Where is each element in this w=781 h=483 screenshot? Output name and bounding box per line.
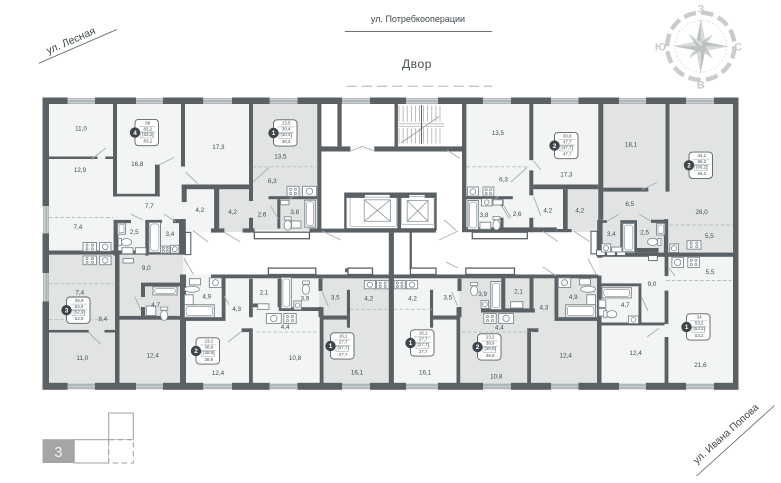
svg-text:(47,7): (47,7) [561, 145, 573, 150]
svg-text:2,5: 2,5 [640, 229, 649, 236]
svg-text:4,4: 4,4 [495, 324, 504, 331]
svg-text:3,9: 3,9 [478, 291, 487, 298]
svg-text:2: 2 [476, 344, 480, 351]
svg-text:7,4: 7,4 [74, 224, 83, 231]
svg-text:2,6: 2,6 [258, 211, 267, 218]
svg-text:16,1: 16,1 [351, 370, 364, 377]
svg-text:27,7: 27,7 [339, 340, 348, 345]
svg-text:В: В [697, 80, 705, 92]
svg-text:4,7: 4,7 [151, 302, 160, 309]
svg-text:4,4: 4,4 [281, 324, 290, 331]
svg-text:6,3: 6,3 [268, 178, 277, 185]
svg-text:52,9: 52,9 [75, 304, 84, 309]
svg-text:3: 3 [54, 444, 62, 461]
svg-text:10,8: 10,8 [490, 374, 503, 381]
svg-text:47,7: 47,7 [563, 152, 572, 157]
svg-text:2,1: 2,1 [260, 289, 269, 296]
svg-text:30,4: 30,4 [282, 127, 291, 132]
svg-text:3,8: 3,8 [480, 212, 489, 219]
svg-text:23,2: 23,2 [205, 339, 214, 344]
svg-text:(27,7): (27,7) [337, 345, 349, 350]
svg-text:2: 2 [687, 163, 691, 170]
svg-text:4,7: 4,7 [621, 302, 630, 309]
svg-text:11,0: 11,0 [76, 355, 88, 362]
svg-text:4,2: 4,2 [228, 209, 237, 216]
svg-text:34: 34 [697, 315, 702, 320]
svg-text:11,0: 11,0 [75, 126, 87, 133]
svg-text:27,7: 27,7 [339, 352, 348, 357]
svg-text:21,6: 21,6 [694, 362, 707, 369]
svg-text:3,8: 3,8 [290, 209, 299, 216]
svg-text:2,1: 2,1 [514, 288, 523, 295]
svg-text:5,5: 5,5 [705, 233, 714, 240]
svg-text:(30,4): (30,4) [280, 132, 292, 137]
svg-text:4,2: 4,2 [575, 208, 584, 215]
svg-text:16,1: 16,1 [419, 331, 428, 336]
svg-text:3,4: 3,4 [607, 231, 616, 238]
svg-text:12,4: 12,4 [560, 353, 573, 360]
svg-text:7,7: 7,7 [145, 203, 154, 210]
svg-text:3,5: 3,5 [331, 294, 340, 301]
svg-text:52,9: 52,9 [75, 316, 84, 321]
svg-text:66,2: 66,2 [698, 171, 707, 176]
svg-text:4,3: 4,3 [540, 305, 549, 312]
svg-text:13,5: 13,5 [492, 130, 505, 137]
svg-text:4,2: 4,2 [364, 296, 373, 303]
svg-text:3,5: 3,5 [443, 294, 452, 301]
svg-text:53,2: 53,2 [695, 333, 704, 338]
svg-text:13,5: 13,5 [274, 154, 287, 161]
svg-text:6,3: 6,3 [499, 176, 508, 183]
svg-text:(38,9): (38,9) [484, 346, 496, 351]
svg-text:3,4: 3,4 [166, 231, 175, 238]
svg-text:3,9: 3,9 [301, 296, 310, 303]
svg-text:66,2: 66,2 [698, 159, 707, 164]
svg-text:4,2: 4,2 [408, 296, 417, 303]
svg-text:16,1: 16,1 [339, 334, 348, 339]
svg-text:4,9: 4,9 [569, 294, 578, 301]
svg-text:4,2: 4,2 [195, 207, 204, 214]
svg-text:12,4: 12,4 [212, 370, 225, 377]
svg-text:53,2: 53,2 [695, 321, 704, 326]
svg-text:9,0: 9,0 [142, 265, 151, 272]
svg-text:30,8: 30,8 [563, 133, 572, 138]
svg-text:13,5: 13,5 [282, 121, 291, 126]
svg-text:2: 2 [553, 143, 557, 150]
svg-text:16,1: 16,1 [419, 370, 432, 377]
svg-text:З: З [697, 4, 704, 16]
svg-text:17,3: 17,3 [212, 144, 225, 151]
svg-text:(38,9): (38,9) [203, 350, 215, 355]
svg-text:4,3: 4,3 [232, 306, 241, 313]
svg-text:12,9: 12,9 [74, 167, 87, 174]
svg-text:47,7: 47,7 [563, 139, 572, 144]
svg-text:38,9: 38,9 [205, 345, 214, 350]
svg-text:2: 2 [194, 348, 198, 355]
svg-text:26,0: 26,0 [695, 209, 708, 216]
svg-text:12,4: 12,4 [147, 353, 160, 360]
svg-text:23,2: 23,2 [486, 335, 495, 340]
svg-text:38,9: 38,9 [486, 341, 495, 346]
svg-text:83,2: 83,2 [144, 139, 153, 144]
svg-text:(66,2): (66,2) [696, 165, 708, 170]
svg-text:8,4: 8,4 [98, 316, 107, 323]
svg-text:38,9: 38,9 [205, 357, 214, 362]
svg-text:9,0: 9,0 [648, 281, 657, 288]
svg-text:1: 1 [272, 130, 276, 137]
svg-text:5,5: 5,5 [706, 269, 715, 276]
svg-text:1: 1 [329, 343, 333, 350]
svg-text:35,8: 35,8 [75, 298, 84, 303]
svg-text:27,7: 27,7 [419, 337, 428, 342]
svg-text:30,4: 30,4 [282, 139, 291, 144]
svg-text:4,9: 4,9 [202, 294, 211, 301]
svg-text:44,1: 44,1 [698, 153, 707, 158]
svg-text:(27,7): (27,7) [417, 342, 429, 347]
svg-text:(53,2): (53,2) [693, 326, 705, 331]
svg-text:58: 58 [145, 120, 150, 125]
svg-text:10,8: 10,8 [289, 355, 302, 362]
svg-text:ул. Потребкооперации: ул. Потребкооперации [371, 14, 465, 24]
svg-text:7,4: 7,4 [75, 289, 84, 296]
svg-text:(83,2): (83,2) [142, 132, 154, 137]
svg-text:17,3: 17,3 [560, 171, 573, 178]
svg-text:3: 3 [65, 307, 69, 314]
svg-text:16,8: 16,8 [131, 161, 144, 168]
svg-text:4,2: 4,2 [543, 208, 552, 215]
svg-text:4: 4 [133, 130, 137, 137]
svg-text:(52,9): (52,9) [73, 309, 85, 314]
svg-text:12,4: 12,4 [629, 350, 642, 357]
svg-text:Двор: Двор [402, 57, 432, 71]
svg-text:6,5: 6,5 [625, 201, 634, 208]
svg-text:2,5: 2,5 [130, 229, 139, 236]
svg-text:2,6: 2,6 [513, 211, 522, 218]
svg-text:1: 1 [685, 324, 689, 331]
svg-text:27,7: 27,7 [419, 349, 428, 354]
svg-text:38,9: 38,9 [486, 353, 495, 358]
svg-text:Ю: Ю [655, 42, 666, 54]
svg-text:С: С [734, 42, 742, 54]
svg-text:18,1: 18,1 [625, 142, 638, 149]
svg-text:83,2: 83,2 [144, 126, 153, 131]
svg-text:1: 1 [409, 340, 413, 347]
